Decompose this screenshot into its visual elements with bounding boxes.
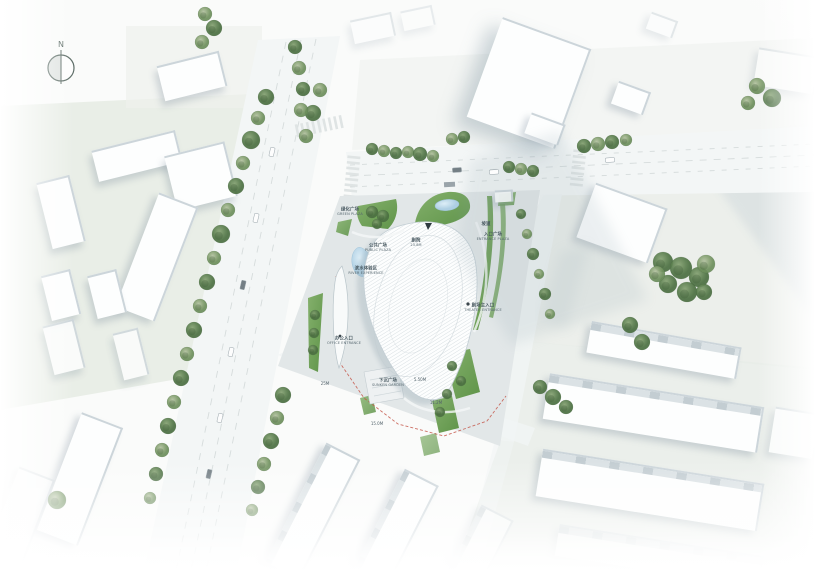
site-label-theater-entrance: 剧场主入口THEATER ENTRANCE [464, 303, 502, 313]
site-label-river-experience: 滨水体验区RIVER EXPERIENCE [348, 266, 383, 276]
site-label-entrance-plaza: 入口广场ENTRANCE PLAZA [477, 232, 510, 242]
site-label-sunken-garden: 下沉广场SUNKEN GARDEN [372, 378, 404, 388]
site-label-theater-height: 剧院23.8M [410, 238, 421, 248]
site-plan-canvas: N 绿化广场GREEN PLAZA 公共广场PUBLIC PLAZA 滨水体验区… [0, 0, 815, 576]
site-label-ramp: 坡道 [481, 221, 490, 227]
elevation-label: 5.50M [414, 378, 426, 383]
elevation-label: 11.2M [430, 401, 442, 406]
labels-layer: 绿化广场GREEN PLAZA 公共广场PUBLIC PLAZA 滨水体验区RI… [0, 0, 815, 576]
site-label-green-plaza: 绿化广场GREEN PLAZA [337, 207, 363, 217]
elevation-label: 15.0M [371, 422, 383, 427]
elevation-label: 25M [321, 382, 329, 387]
site-label-public-plaza: 公共广场PUBLIC PLAZA [365, 243, 391, 253]
site-label-office-entrance: 办公入口OFFICE ENTRANCE [327, 336, 361, 346]
